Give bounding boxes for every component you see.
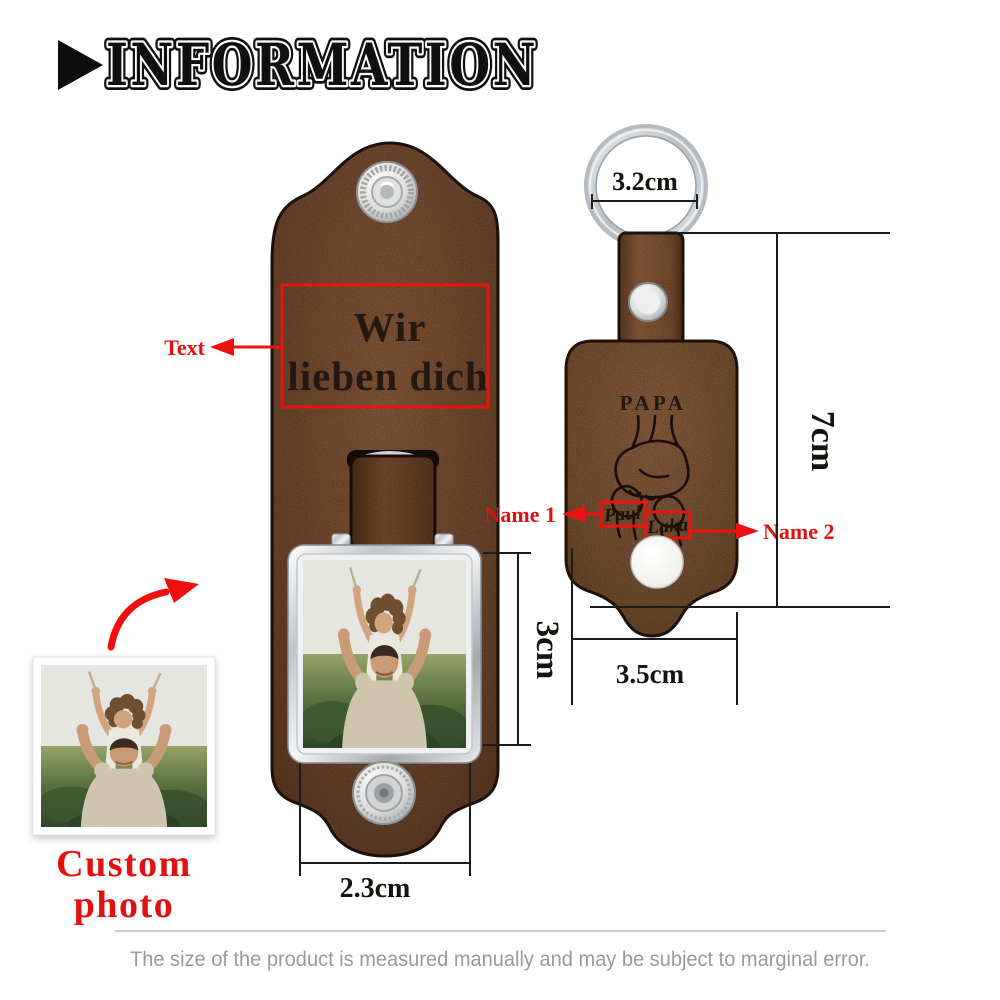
- right-leather-texture: [566, 341, 737, 636]
- text-arrowhead-icon: [210, 338, 234, 356]
- play-triangle-icon: [58, 40, 103, 90]
- dim-3-5cm-label: 3.5cm: [616, 659, 685, 689]
- snap-button-bottom: [353, 762, 415, 824]
- framed-photo: [300, 560, 470, 765]
- photo-frame: [288, 545, 481, 765]
- custom-photo: [38, 665, 211, 842]
- dim-3cm-label: 3cm: [529, 621, 565, 680]
- engraved-name2: Luka: [645, 515, 689, 539]
- disclaimer-text: The size of the product is measured manu…: [130, 948, 870, 971]
- snap-button-top: [357, 162, 417, 222]
- product-info-canvas: INFORMATION INFORMATION INFORMATION Wir …: [0, 0, 1000, 1000]
- engraved-text-line2: lieben dich: [287, 353, 488, 399]
- name2-arrowhead-icon: [736, 523, 759, 539]
- page-title: INFORMATION: [106, 31, 538, 99]
- header: INFORMATION INFORMATION INFORMATION: [58, 31, 538, 99]
- text-label: Text: [164, 335, 205, 360]
- dim-7cm-label: 7cm: [804, 411, 841, 471]
- engraved-text-line1: Wir: [354, 304, 427, 350]
- leather-loop-texture: [351, 456, 435, 550]
- curved-arrow: [111, 592, 166, 647]
- custom-photo-label-line2: photo: [74, 884, 174, 926]
- snap-button-right: [631, 536, 683, 588]
- right-keychain: 3.2cm PAPA: [485, 126, 890, 705]
- name2-label: Name 2: [763, 519, 834, 544]
- papa-engraving: PAPA: [620, 391, 687, 415]
- custom-photo-block: Custom photo: [33, 578, 215, 926]
- infographic-scene: INFORMATION INFORMATION INFORMATION Wir …: [0, 0, 1000, 1000]
- engraved-name1: Paul: [602, 502, 642, 526]
- dim-3-2cm-label: 3.2cm: [612, 167, 678, 196]
- footer: The size of the product is measured manu…: [115, 931, 886, 971]
- name1-label: Name 1: [485, 502, 556, 527]
- custom-photo-label-line1: Custom: [56, 843, 192, 885]
- rivet: [629, 283, 667, 321]
- dimension-3-2cm: 3.2cm: [592, 167, 697, 209]
- curved-arrowhead-icon: [164, 578, 199, 603]
- dim-2-3cm-label: 2.3cm: [340, 873, 411, 904]
